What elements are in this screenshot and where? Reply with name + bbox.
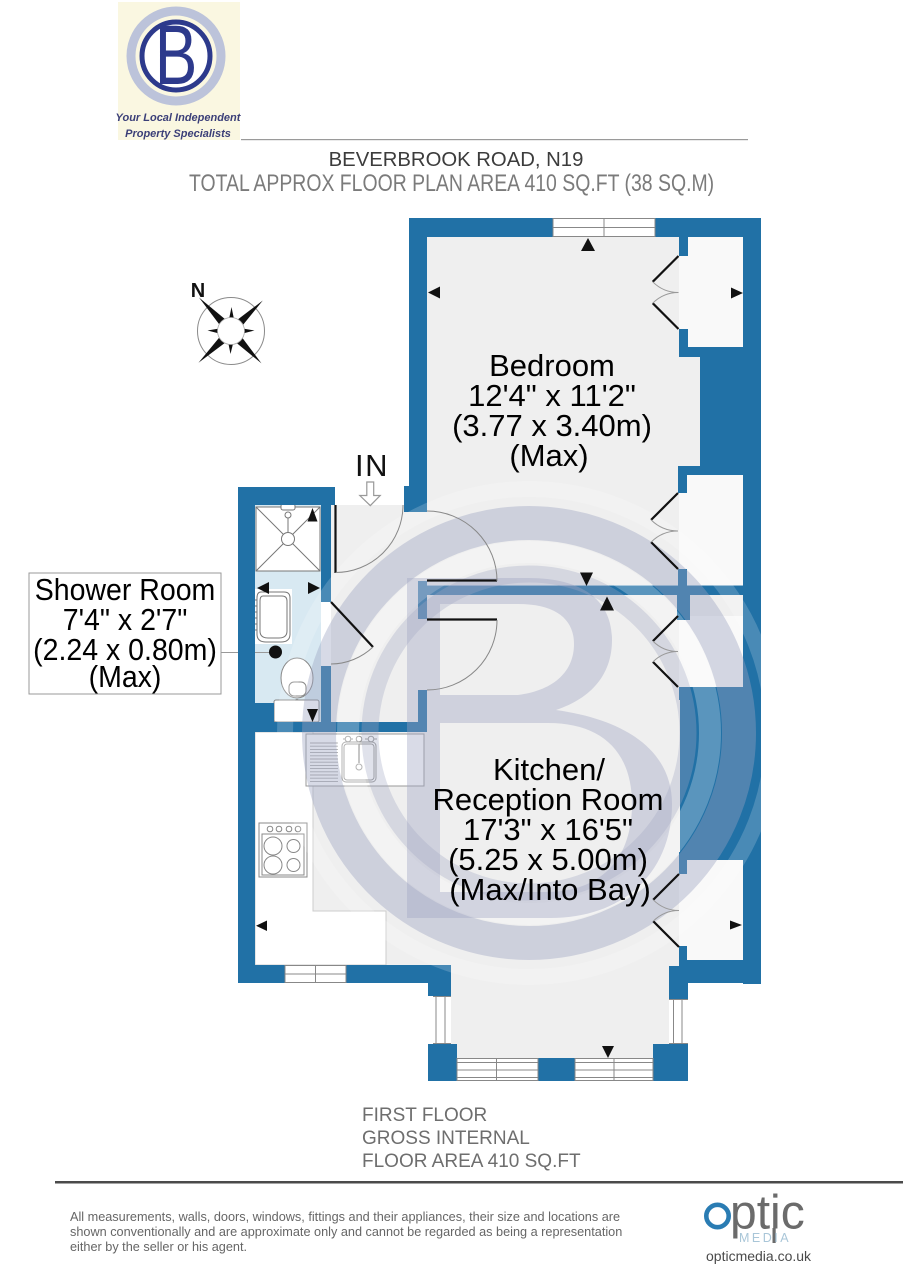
svg-text:FLOOR AREA 410 SQ.FT: FLOOR AREA 410 SQ.FT [362,1151,581,1172]
svg-text:All measurements, walls, doors: All measurements, walls, doors, windows,… [70,1210,620,1224]
svg-text:either by the seller or his ag: either by the seller or his agent. [70,1240,247,1254]
svg-text:N: N [191,280,205,302]
svg-text:Your Local Independent: Your Local Independent [116,112,242,124]
svg-text:GROSS INTERNAL: GROSS INTERNAL [362,1128,530,1149]
svg-text:IN: IN [355,448,389,483]
svg-text:opticmedia.co.uk: opticmedia.co.uk [706,1248,812,1264]
svg-text:FIRST FLOOR: FIRST FLOOR [362,1105,487,1126]
svg-text:(Max/Into Bay): (Max/Into Bay) [449,872,651,907]
svg-text:TOTAL APPROX FLOOR PLAN AREA 4: TOTAL APPROX FLOOR PLAN AREA 410 SQ.FT (… [189,169,714,196]
svg-text:(Max): (Max) [509,438,588,473]
svg-text:B: B [155,7,198,102]
svg-text:Property Specialists: Property Specialists [125,128,231,140]
svg-text:MEDIA: MEDIA [739,1231,791,1245]
svg-text:BEVERBROOK ROAD, N19: BEVERBROOK ROAD, N19 [329,149,584,171]
svg-text:shown conventionally and are a: shown conventionally and are approximate… [70,1225,622,1239]
svg-text:(Max): (Max) [89,660,162,694]
